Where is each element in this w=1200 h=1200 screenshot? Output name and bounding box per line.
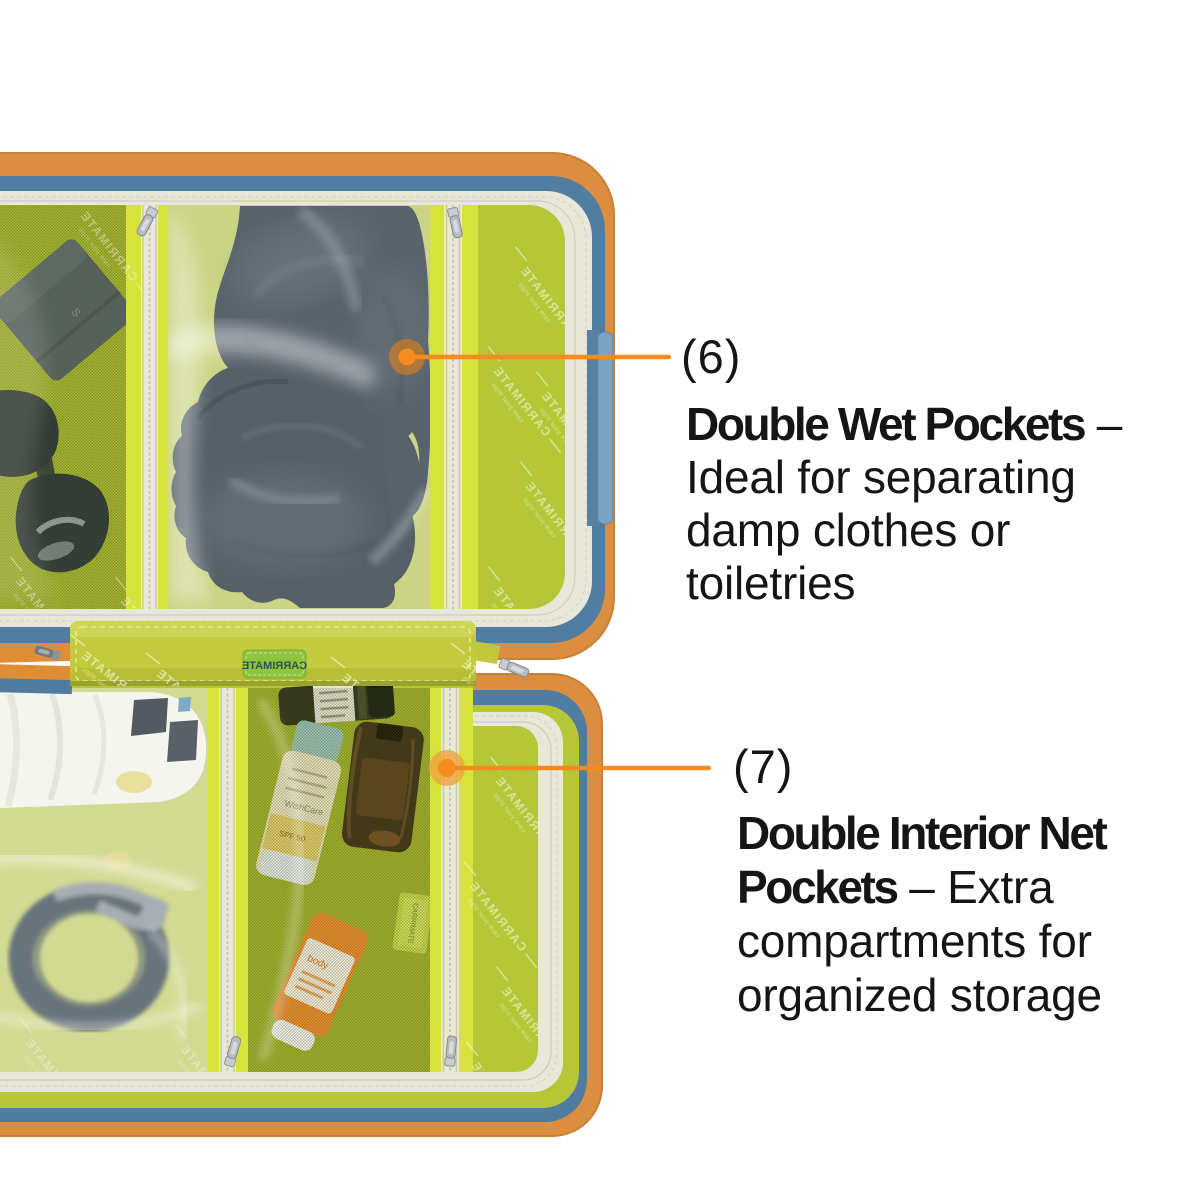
svg-text:CARRIMATE: CARRIMATE <box>242 660 307 672</box>
